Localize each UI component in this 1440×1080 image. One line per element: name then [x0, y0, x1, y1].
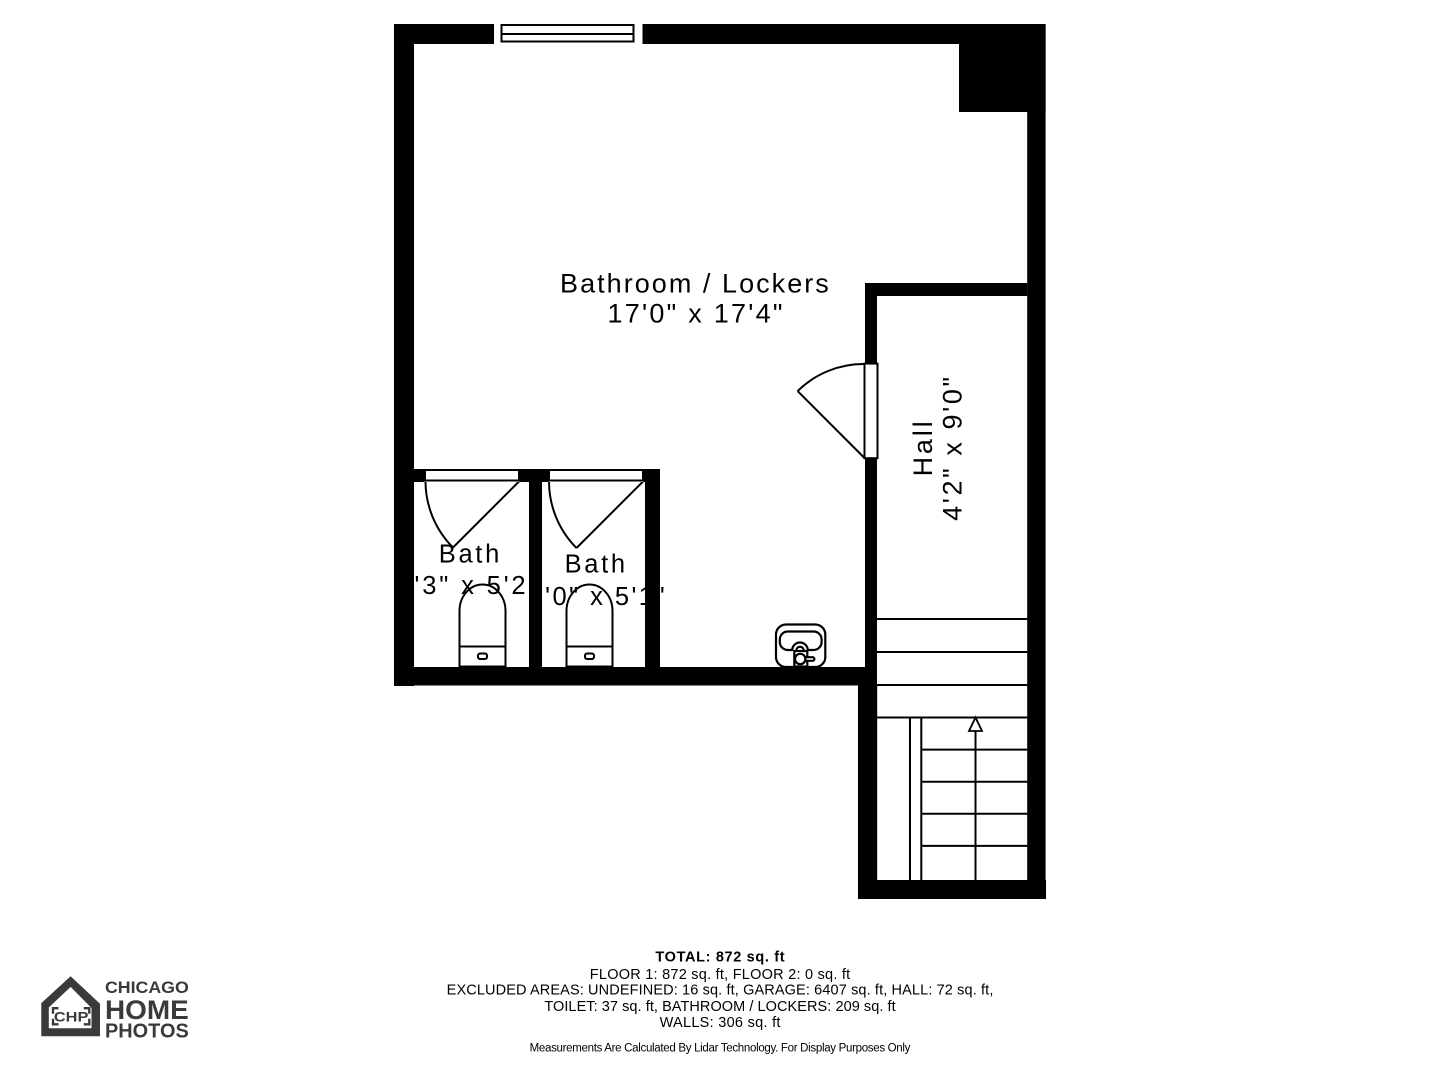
svg-text:PHOTOS: PHOTOS: [105, 1021, 189, 1043]
svg-text:Hall: Hall: [908, 421, 938, 476]
svg-text:Measurements Are Calculated By: Measurements Are Calculated By Lidar Tec…: [530, 1043, 911, 1055]
svg-text:4'3" x 5'2": 4'3" x 5'2": [398, 572, 538, 600]
svg-text:CHP: CHP: [54, 1009, 89, 1024]
svg-text:4'2" x 9'0": 4'2" x 9'0": [938, 377, 968, 521]
svg-text:Bath: Bath: [439, 541, 500, 569]
svg-text:TOILET: 37 sq. ft, BATHROOM /: TOILET: 37 sq. ft, BATHROOM / LOCKERS: 2…: [544, 999, 895, 1015]
svg-text:Bath: Bath: [565, 551, 625, 579]
svg-text:Bathroom / Lockers: Bathroom / Lockers: [560, 269, 829, 299]
svg-text:WALLS: 306 sq. ft: WALLS: 306 sq. ft: [660, 1015, 781, 1031]
svg-text:FLOOR 1: 872 sq. ft, FLOOR 2:: FLOOR 1: 872 sq. ft, FLOOR 2: 0 sq. ft: [590, 967, 850, 983]
svg-text:TOTAL: 872 sq. ft: TOTAL: 872 sq. ft: [655, 950, 784, 966]
svg-text:17'0" x 17'4": 17'0" x 17'4": [608, 299, 783, 329]
svg-text:3'0" x 5'1": 3'0" x 5'1": [529, 583, 665, 611]
svg-text:EXCLUDED AREAS: UNDEFINED: 16: EXCLUDED AREAS: UNDEFINED: 16 sq. ft, GA…: [447, 983, 994, 999]
